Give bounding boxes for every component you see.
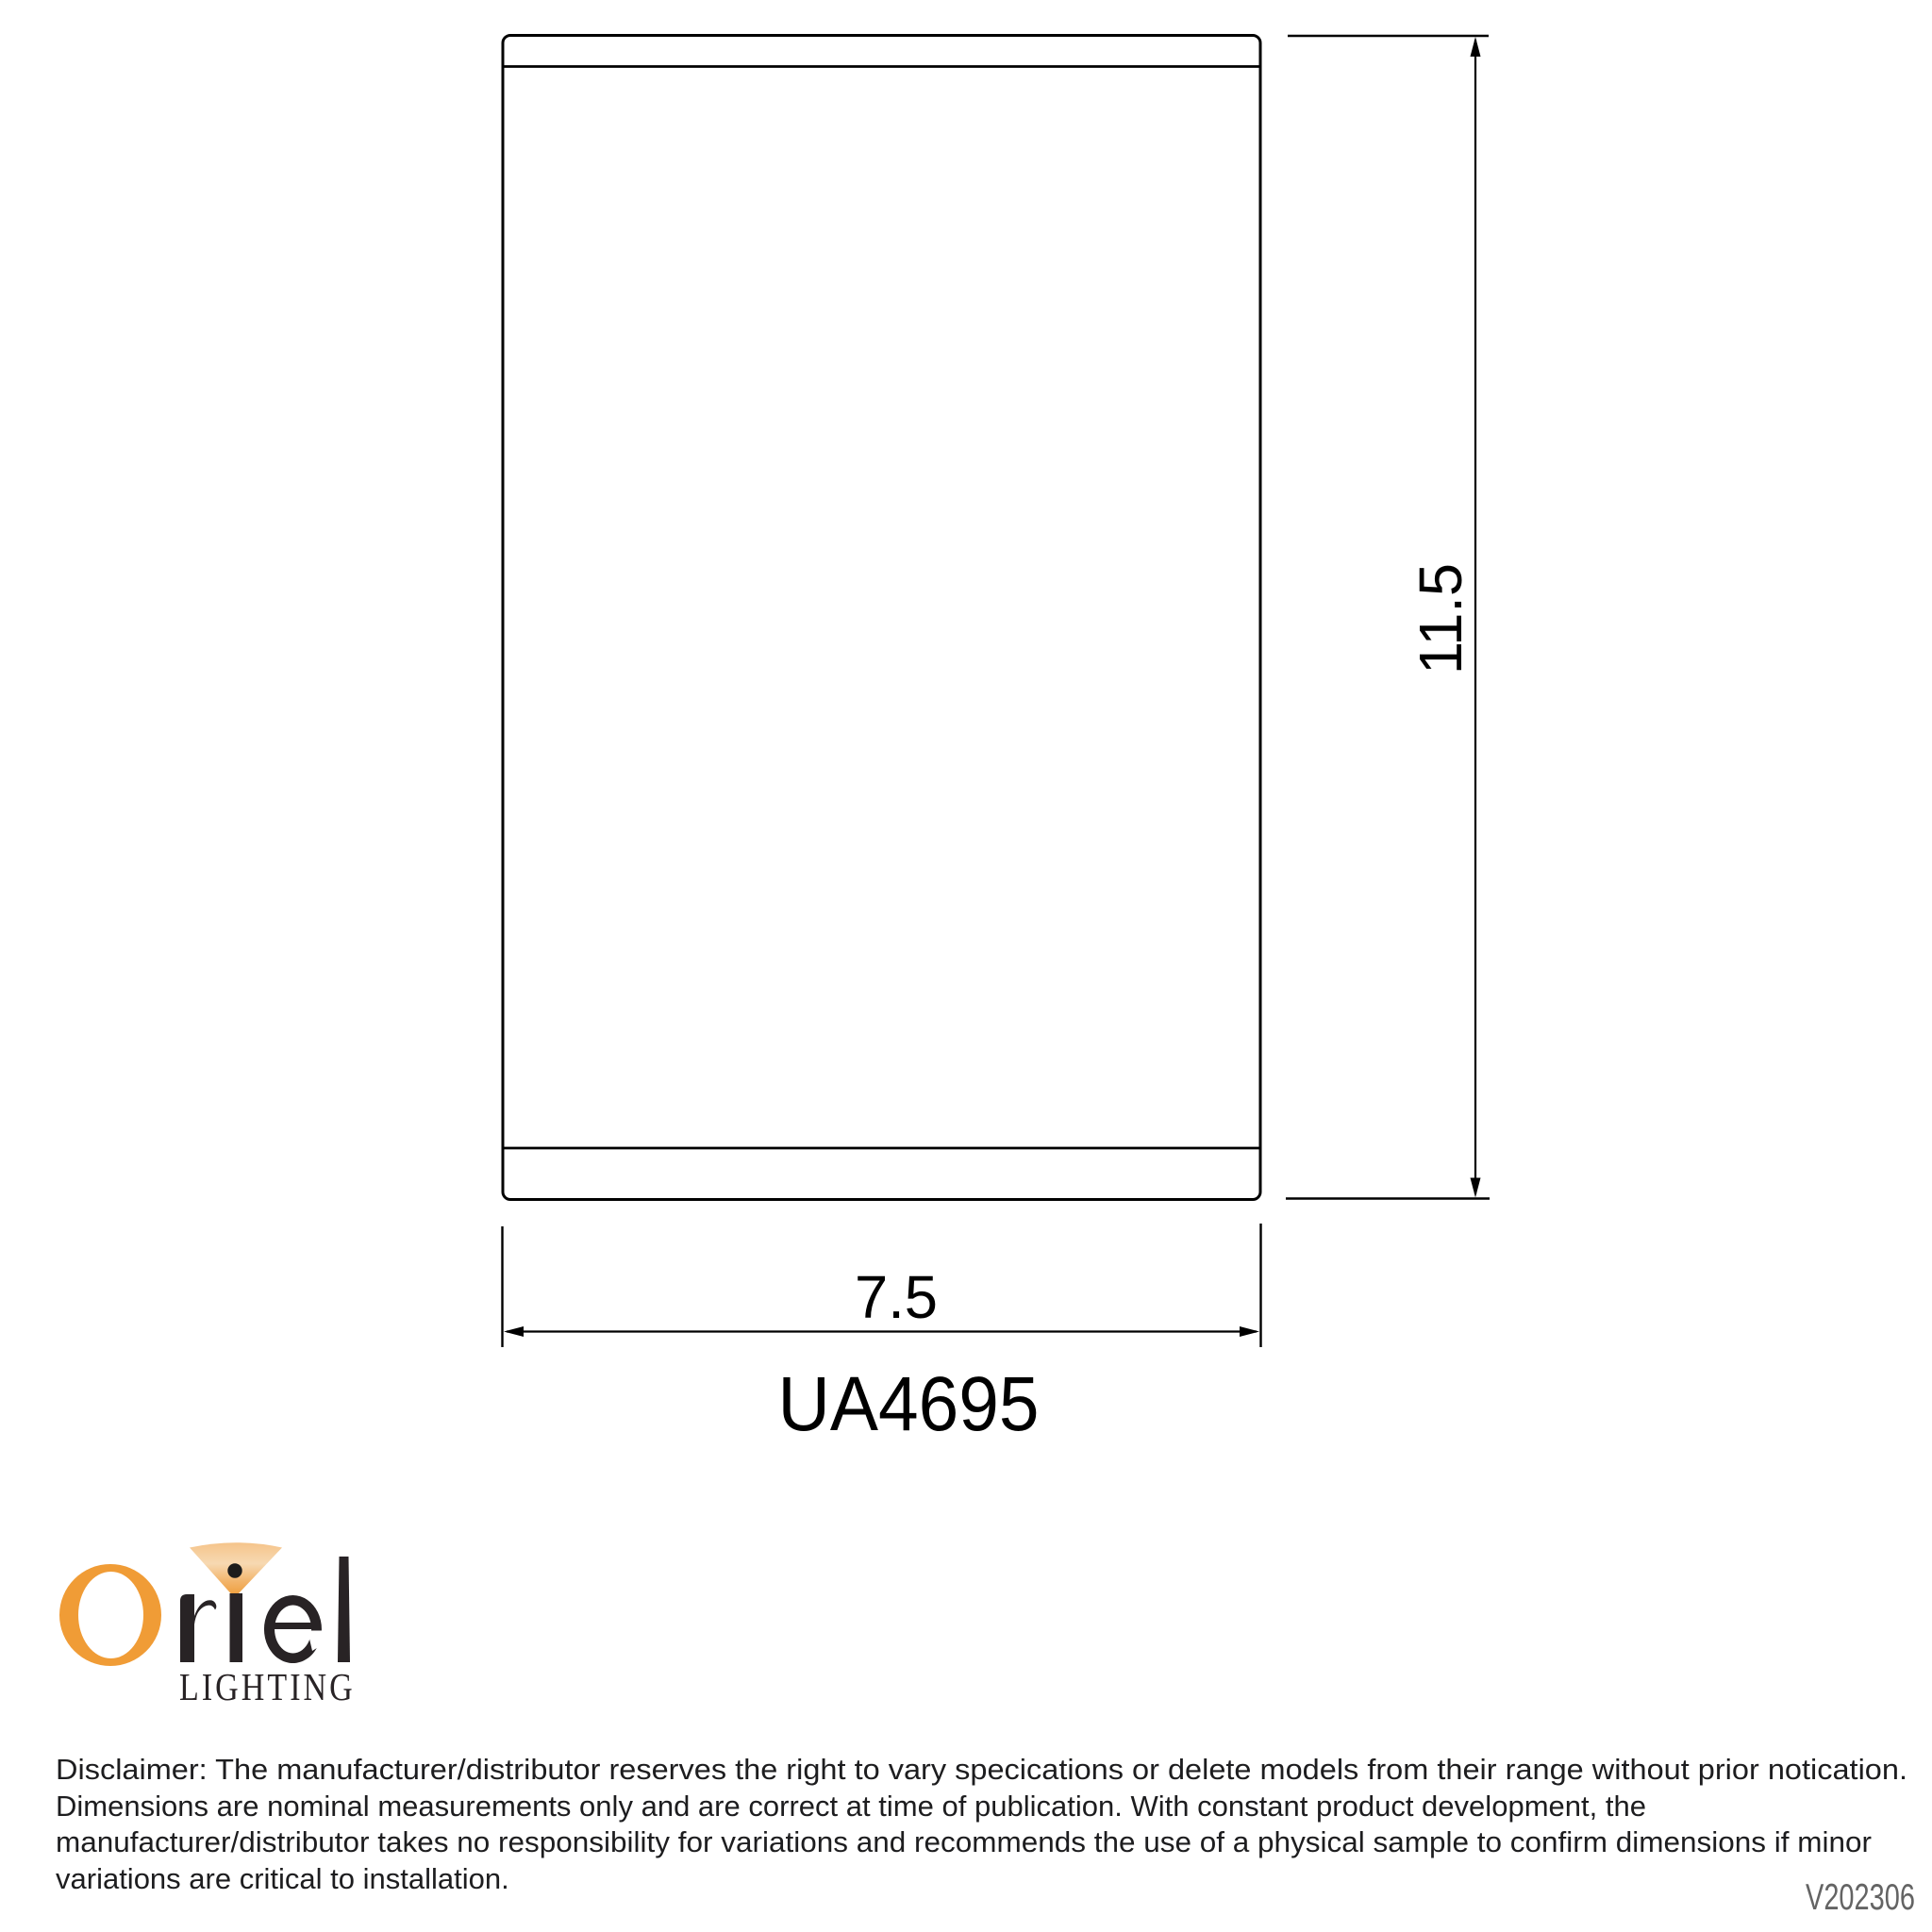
svg-text:manufacturer/distributor takes: manufacturer/distributor takes no respon…: [56, 1825, 1872, 1858]
svg-text:variations are critical to ins: variations are critical to installation.: [56, 1862, 509, 1895]
svg-text:7.5: 7.5: [855, 1263, 938, 1331]
svg-text:Disclaimer: The manufacturer/d: Disclaimer: The manufacturer/distributor…: [56, 1753, 1907, 1786]
svg-text:Dimensions are nominal measure: Dimensions are nominal measurements only…: [56, 1790, 1646, 1823]
svg-text:UA4695: UA4695: [778, 1361, 1040, 1447]
svg-text:V202306: V202306: [1806, 1877, 1915, 1918]
svg-text:LIGHTING: LIGHTING: [179, 1666, 356, 1709]
svg-text:11.5: 11.5: [1407, 563, 1474, 675]
